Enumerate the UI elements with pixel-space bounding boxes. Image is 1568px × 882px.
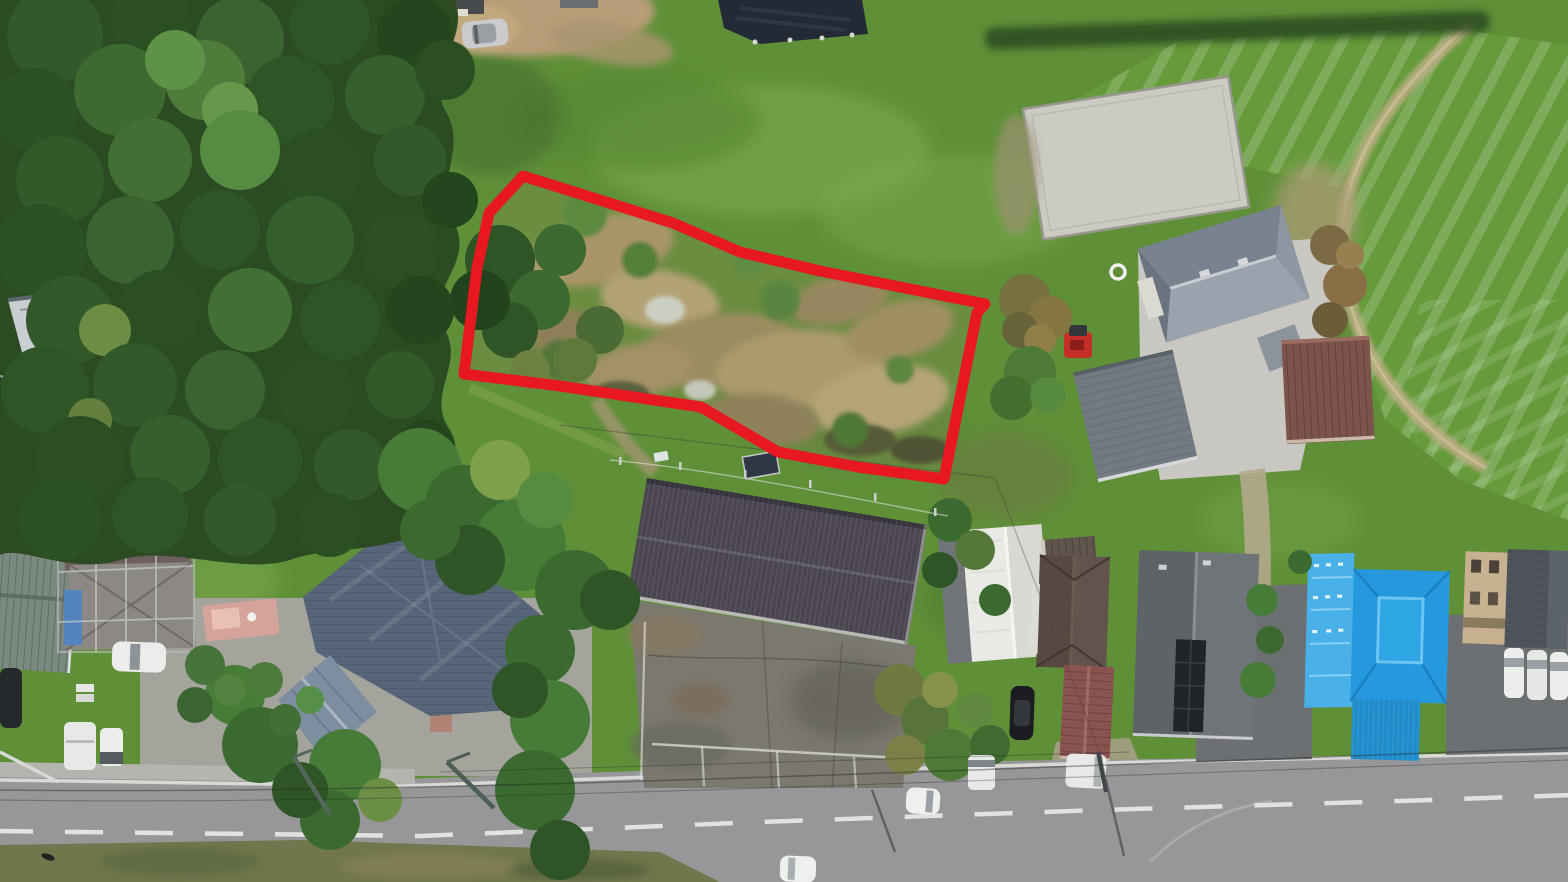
white-van-center (968, 755, 995, 790)
blue-tarp-corner (64, 590, 82, 645)
upper-ridge-box (1377, 598, 1423, 663)
white-cars-right-driveway (1504, 648, 1568, 700)
charcoal-house (1133, 550, 1259, 740)
patio (202, 598, 279, 642)
aerial-photo (0, 0, 1568, 882)
dirt-border-pad (994, 115, 1038, 235)
silver-hatchback (461, 18, 510, 50)
white-van-left (64, 722, 96, 770)
white-kei-car-left (100, 728, 123, 766)
corner-dark-roof-house (1504, 549, 1568, 649)
dark-brown-house (1028, 555, 1110, 670)
tan-building (1462, 551, 1509, 644)
white-car-road-shoulder (780, 855, 817, 882)
black-suv (1009, 686, 1035, 741)
white-car-on-road (905, 787, 941, 815)
dark-car-left-edge (0, 668, 22, 728)
aerial-photo-canvas (0, 0, 1568, 882)
maroon-shed (1060, 665, 1115, 761)
white-sedan-lot (111, 641, 166, 673)
